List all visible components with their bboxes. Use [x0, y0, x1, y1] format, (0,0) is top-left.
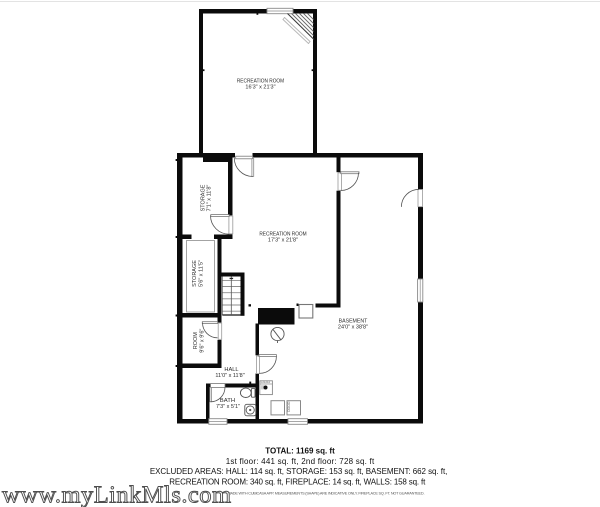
svg-text:16'3" x 21'3": 16'3" x 21'3" [245, 85, 275, 91]
svg-text:17'3" x 21'8": 17'3" x 21'8" [268, 238, 298, 244]
svg-text:11'0" x 11'8": 11'0" x 11'8" [215, 373, 244, 379]
svg-text:STORAGE: STORAGE [192, 260, 198, 287]
svg-text:RECREATION ROOM: RECREATION ROOM [237, 79, 285, 85]
svg-text:RECREATION ROOM: RECREATION ROOM [259, 232, 307, 238]
svg-text:TOTAL: 1169 sq. ft: TOTAL: 1169 sq. ft [265, 447, 335, 456]
svg-text:24'0" x 38'8": 24'0" x 38'8" [338, 324, 368, 330]
svg-text:www.myLinkMls.com: www.myLinkMls.com [2, 482, 231, 507]
svg-text:9'6" x 9'6": 9'6" x 9'6" [199, 329, 205, 353]
svg-text:7'3" x 5'1": 7'3" x 5'1" [216, 404, 240, 410]
svg-text:5'6" x 11'5": 5'6" x 11'5" [198, 260, 204, 287]
svg-text:1st floor: 441 sq. ft, 2nd flo: 1st floor: 441 sq. ft, 2nd floor: 728 sq… [226, 457, 375, 466]
svg-text:ROOM: ROOM [193, 332, 199, 350]
svg-text:7'1" x 11'8": 7'1" x 11'8" [207, 185, 213, 212]
svg-text:MADE WITH CUBICASA APP. MEASUR: MADE WITH CUBICASA APP. MEASUREMENTS (SH… [228, 492, 425, 496]
svg-text:EXCLUDED AREAS: HALL: 114 sq.: EXCLUDED AREAS: HALL: 114 sq. ft, STORAG… [150, 467, 447, 476]
